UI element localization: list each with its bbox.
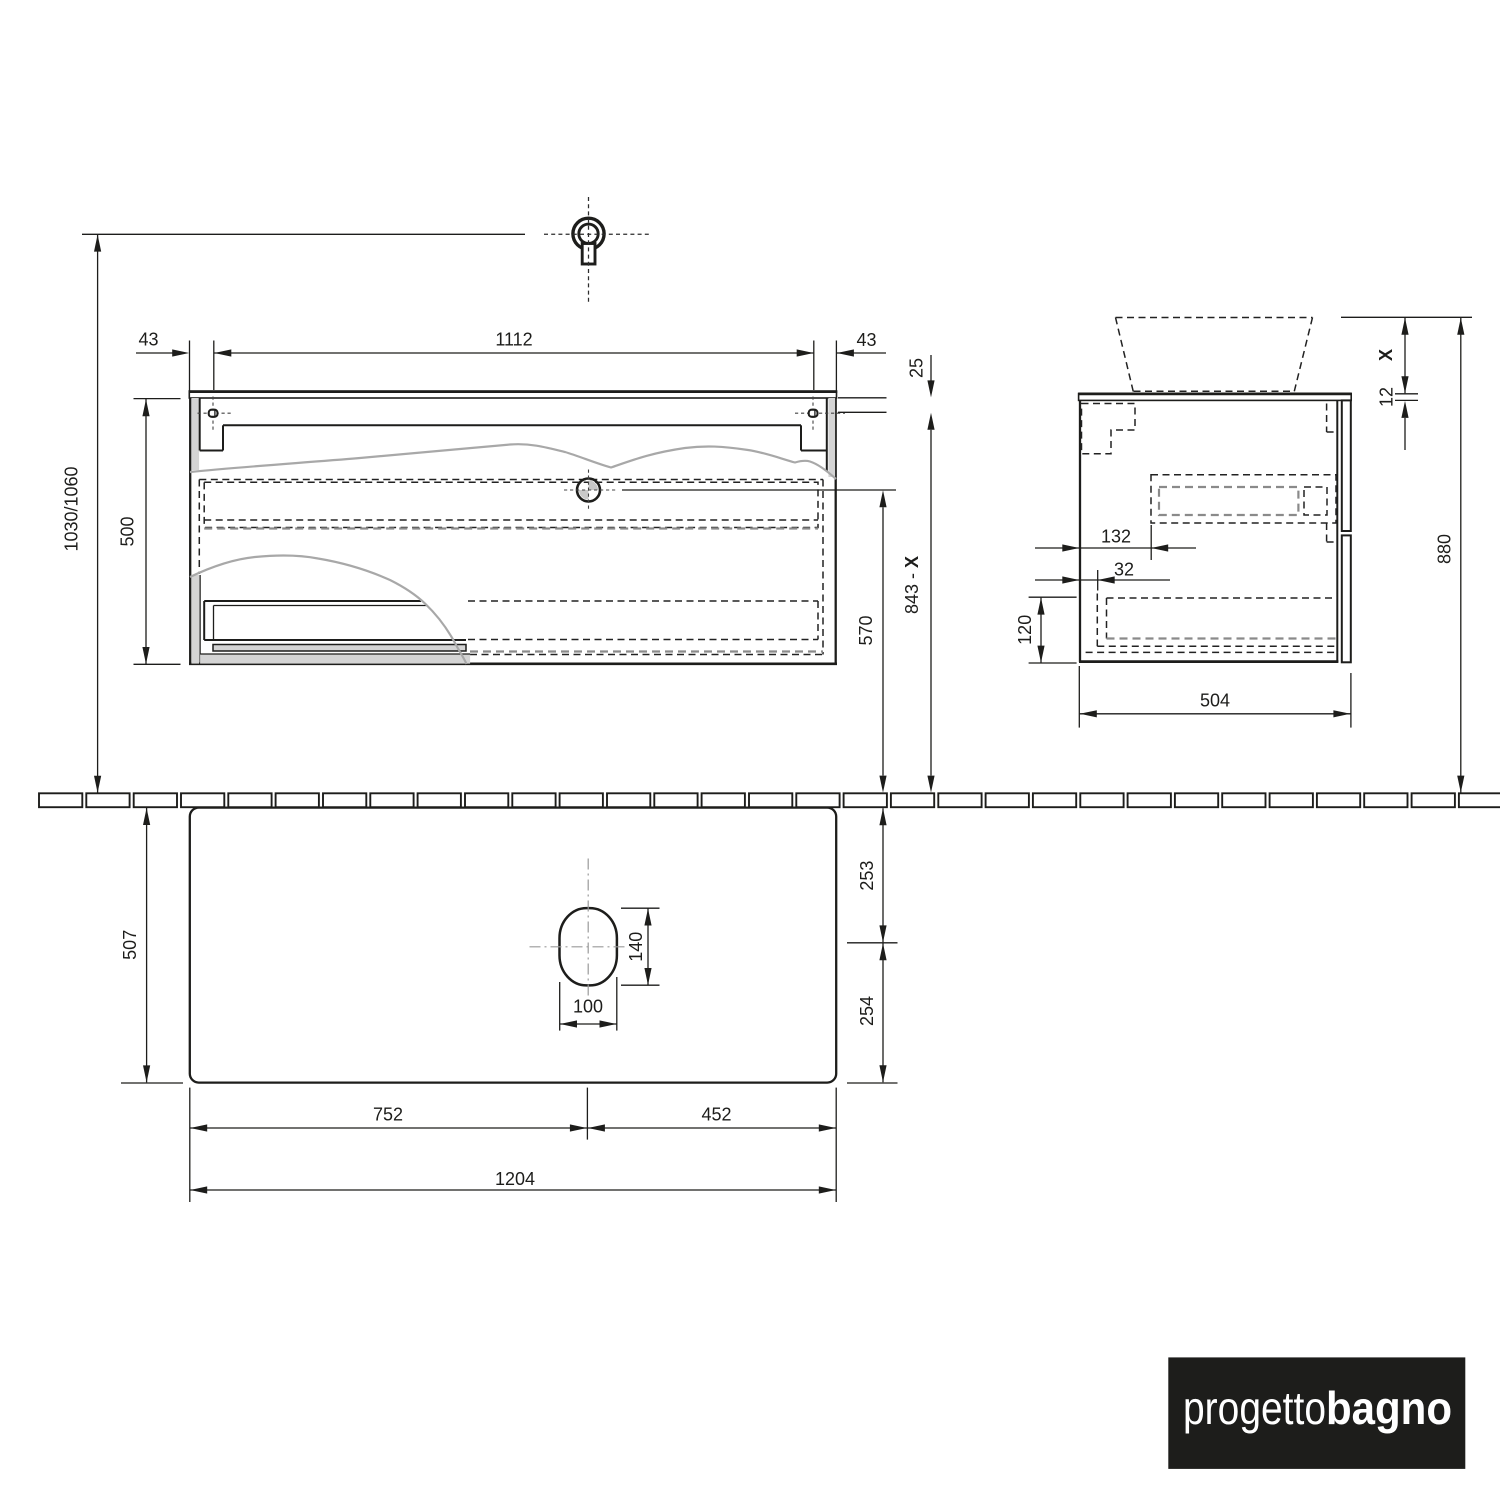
svg-text:43: 43 [856,330,876,350]
svg-text:752: 752 [373,1105,403,1125]
svg-text:1030/1060: 1030/1060 [62,466,82,551]
svg-text:253: 253 [857,861,877,891]
svg-text:500: 500 [118,516,138,546]
svg-text:132: 132 [1101,527,1131,547]
svg-text:43: 43 [138,330,158,350]
svg-text:880: 880 [1435,534,1455,564]
svg-text:progettobagno: progettobagno [1183,1382,1452,1434]
svg-text:504: 504 [1200,691,1230,711]
svg-text:32: 32 [1114,560,1134,580]
svg-text:452: 452 [701,1105,731,1125]
svg-text:140: 140 [626,932,646,962]
svg-text:507: 507 [120,930,140,960]
svg-text:843 - X: 843 - X [902,556,922,614]
svg-text:254: 254 [857,996,877,1026]
svg-text:570: 570 [856,615,876,645]
svg-text:1204: 1204 [495,1169,535,1189]
svg-text:1112: 1112 [495,330,532,350]
svg-text:25: 25 [907,358,927,378]
svg-text:120: 120 [1015,615,1035,645]
svg-text:12: 12 [1377,387,1397,407]
svg-text:100: 100 [573,997,603,1017]
svg-text:X: X [1376,349,1396,361]
